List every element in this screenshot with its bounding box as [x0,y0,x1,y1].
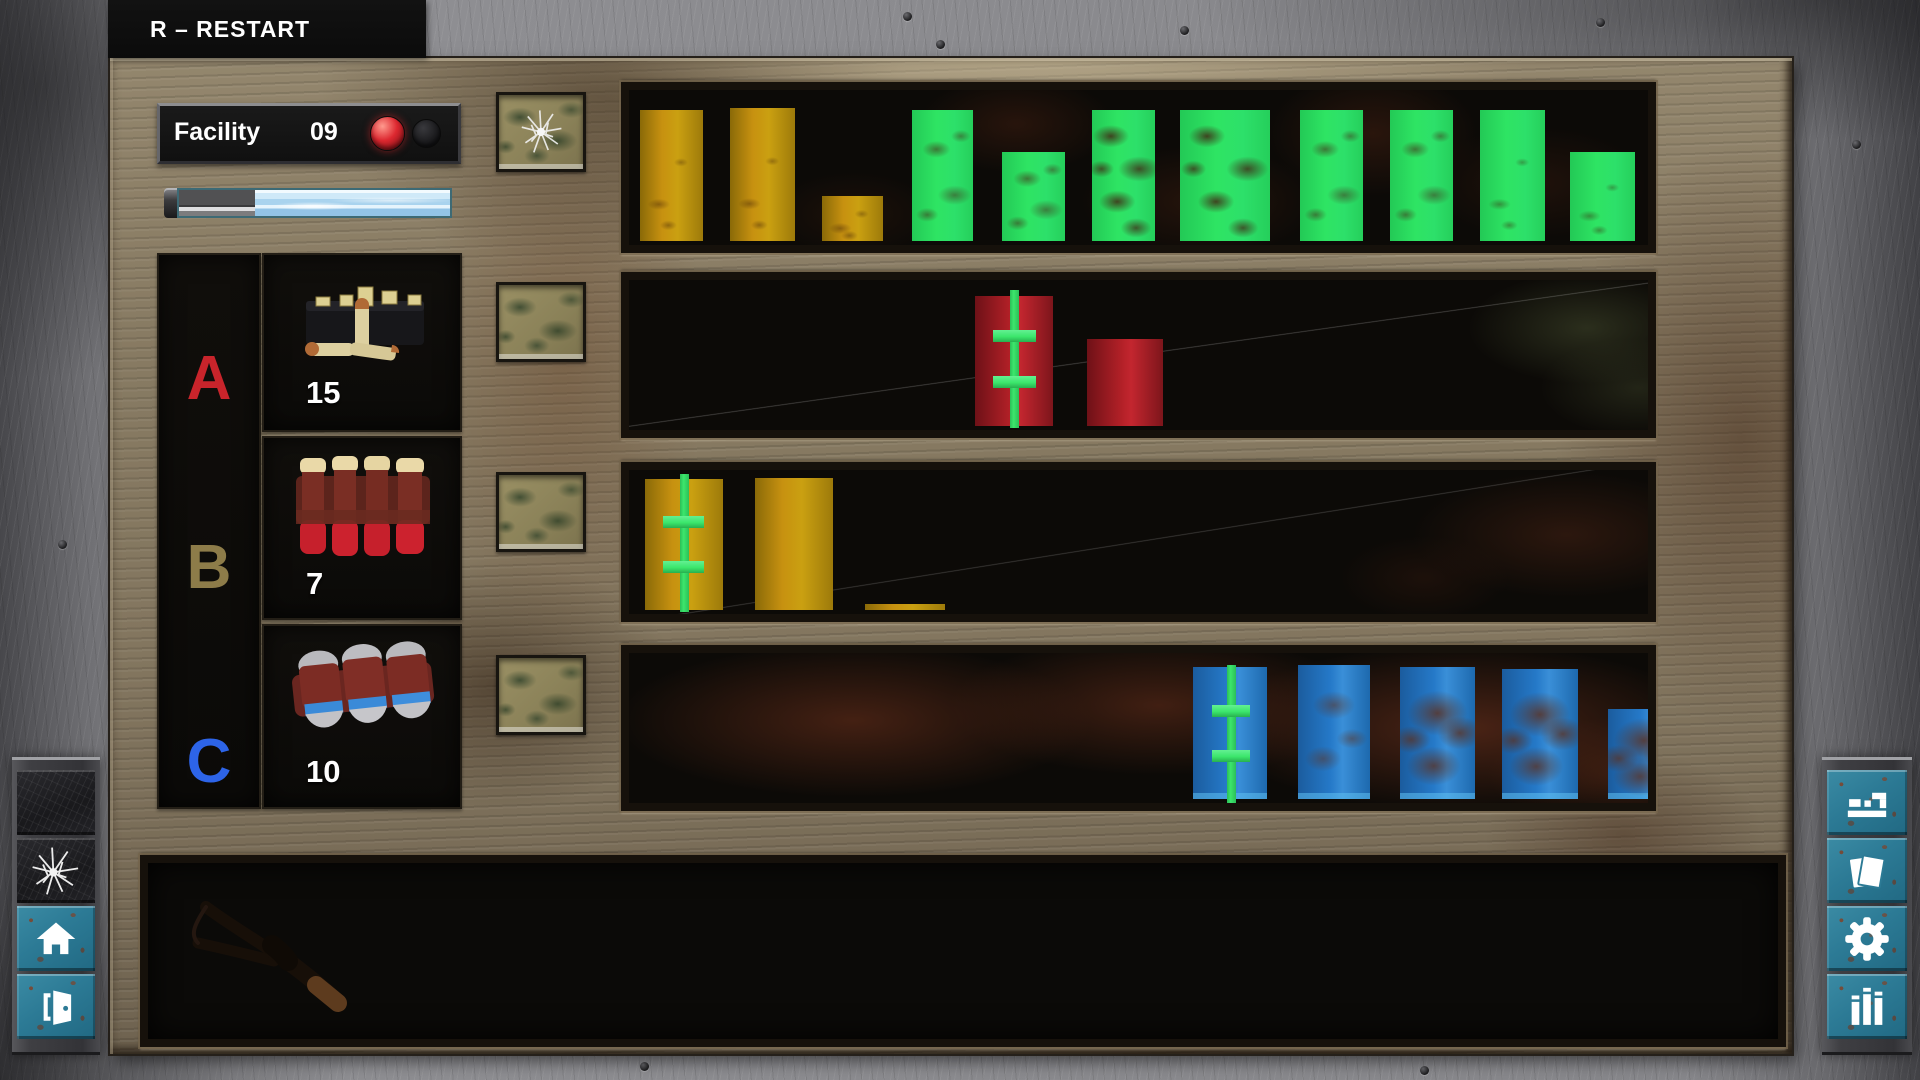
gear-icon [1844,916,1890,962]
progress-bar-tube [177,188,452,218]
red-shotgun-shells-icon [288,448,438,573]
lane-select-button-3[interactable] [496,472,586,552]
target-bar-green [912,110,973,241]
target-bar-green [1092,110,1155,241]
facility-label: Facility [174,118,260,147]
target-bar-green [1570,152,1635,241]
ammo-count-c: 10 [306,754,340,790]
lane-select-button-4[interactable] [496,655,586,735]
texture-shatter-button[interactable] [17,838,95,903]
right-toolbar [1822,757,1912,1055]
target-bar-gold [640,110,703,241]
facility-number: 09 [310,118,338,147]
target-bar-blue [1608,709,1648,799]
ammo-slot-a[interactable]: 15 [262,253,462,432]
screw-hole [1180,26,1189,35]
screw-hole [58,540,67,549]
rifle-cartridge-box-icon [288,273,438,373]
target-marker-crossbar [1212,750,1250,762]
facility-panel: Facility 09 [157,103,461,164]
target-bar-gold [755,478,833,610]
target-marker-crossbar [663,516,704,528]
ammo-key-a: A [159,343,259,414]
target-lane-1 [621,82,1656,253]
target-marker-line [1010,290,1019,428]
shatter-icon [30,845,82,897]
exit-door-icon [34,985,78,1029]
progress-remaining-segment [255,190,450,216]
levels-button[interactable] [1827,770,1907,835]
home-icon [34,917,78,961]
restart-hint-label: R – RESTART [108,16,310,43]
documents-icon [1844,848,1890,894]
target-marker-crossbar [993,330,1036,342]
alarm-light-off [412,119,441,148]
shatter-icon [517,108,565,156]
ammo-slot-c[interactable]: 10 [262,624,462,809]
target-lane-4 [621,645,1656,811]
left-toolbar [12,757,100,1055]
target-marker-crossbar [1212,705,1250,717]
target-bar-gold [865,604,945,610]
stats-icon [1844,984,1890,1030]
ammo-key-b: B [159,532,259,603]
screw-hole [1852,140,1861,149]
progress-bar [164,188,452,218]
ammo-count-b: 7 [306,566,323,602]
target-bar-blue [1400,667,1475,799]
lane-select-button-2[interactable] [496,282,586,362]
target-bar-green [1480,110,1545,241]
levels-icon [1844,780,1890,826]
target-marker-line [1227,665,1236,803]
alarm-light-red [370,116,405,151]
weapon-tray [140,855,1786,1047]
weapon-slingshot[interactable] [176,881,376,1041]
target-bar-green [1002,152,1065,241]
target-marker-crossbar [663,561,704,573]
ammo-key-panel: A B C [157,253,261,809]
progress-depleted-segment [179,190,255,216]
settings-button[interactable] [1827,906,1907,971]
notes-button[interactable] [1827,838,1907,903]
texture-marble-button[interactable] [17,770,95,835]
target-bar-green [1390,110,1453,241]
game-screen: R – RESTART Facility 09 A B C [0,0,1920,1080]
target-bar-gold [730,108,795,241]
exit-button[interactable] [17,974,95,1039]
target-bar-green [1300,110,1363,241]
target-bar-red [1087,339,1163,426]
target-marker-crossbar [993,376,1036,388]
restart-hint-bar: R – RESTART [108,0,426,58]
ammo-count-a: 15 [306,375,340,411]
screw-hole [936,40,945,49]
screw-hole [903,12,912,21]
ammo-slot-b[interactable]: 7 [262,436,462,620]
ammo-key-c: C [159,726,259,797]
screw-hole [1596,18,1605,27]
stats-button[interactable] [1827,974,1907,1039]
home-button[interactable] [17,906,95,971]
target-bar-blue [1298,665,1370,799]
blue-tip-shells-icon [288,638,443,758]
target-lane-3 [621,462,1656,622]
target-bar-blue [1502,669,1578,799]
lane-select-button-1[interactable] [496,92,586,172]
marble-texture [17,770,95,835]
target-lane-2 [621,272,1656,438]
screw-hole [1420,1066,1429,1075]
target-marker-line [680,474,689,612]
target-bar-green [1180,110,1270,241]
screw-hole [640,1062,649,1071]
target-bar-gold [822,196,883,241]
progress-bar-cap [164,188,177,218]
